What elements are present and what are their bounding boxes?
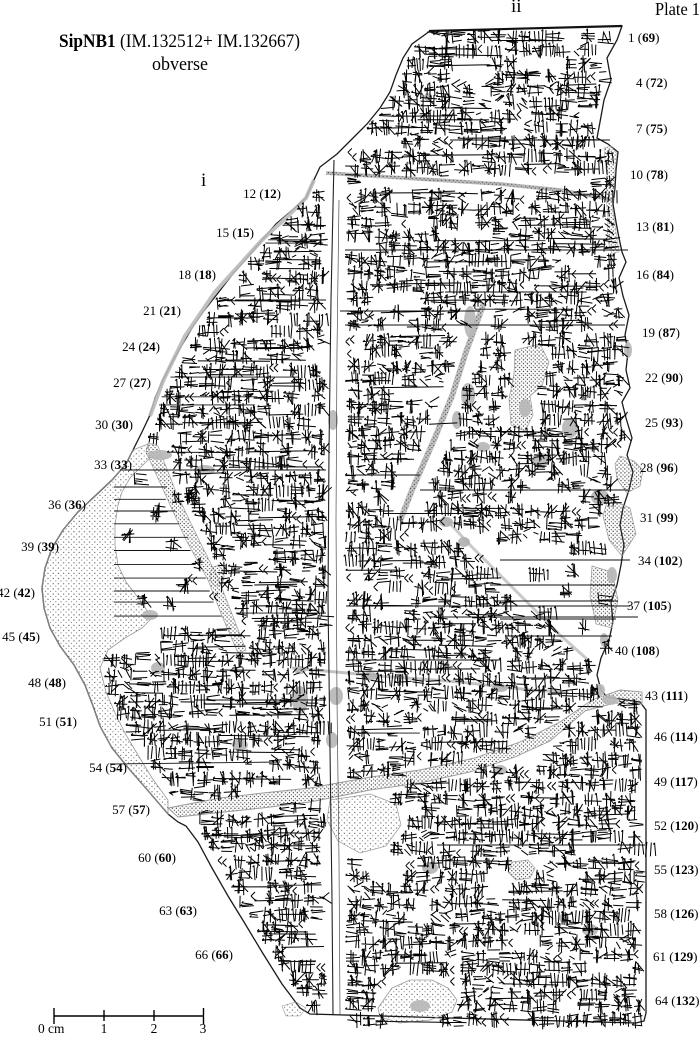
svg-text:10 (78): 10 (78): [630, 167, 668, 182]
svg-text:43 (111): 43 (111): [645, 688, 688, 703]
svg-text:45 (45): 45 (45): [2, 629, 40, 644]
svg-text:36 (36): 36 (36): [48, 497, 86, 512]
svg-text:3: 3: [200, 1021, 207, 1036]
svg-text:obverse: obverse: [152, 54, 208, 75]
svg-text:39 (39): 39 (39): [21, 539, 59, 554]
svg-text:37 (105): 37 (105): [627, 598, 671, 613]
svg-text:18 (18): 18 (18): [178, 267, 216, 282]
svg-text:66 (66): 66 (66): [195, 947, 233, 962]
svg-text:27 (27): 27 (27): [113, 375, 151, 390]
svg-text:25 (93): 25 (93): [645, 415, 683, 430]
svg-text:4 (72): 4 (72): [636, 75, 667, 90]
svg-text:57 (57): 57 (57): [112, 802, 150, 817]
svg-text:13 (81): 13 (81): [636, 219, 674, 234]
svg-text:SipNB1 (IM.132512+ IM.132667): SipNB1 (IM.132512+ IM.132667): [59, 31, 300, 52]
svg-text:28 (96): 28 (96): [640, 460, 678, 475]
svg-text:0 cm: 0 cm: [38, 1021, 65, 1036]
svg-text:16 (84): 16 (84): [636, 267, 674, 282]
svg-text:19 (87): 19 (87): [642, 325, 680, 340]
svg-text:7 (75): 7 (75): [636, 121, 667, 136]
svg-text:58 (126): 58 (126): [654, 906, 698, 921]
svg-text:15 (15): 15 (15): [216, 225, 254, 240]
svg-text:Plate 1: Plate 1: [655, 0, 700, 19]
svg-text:52 (120): 52 (120): [654, 818, 698, 833]
svg-text:24 (24): 24 (24): [122, 339, 160, 354]
svg-text:60 (60): 60 (60): [138, 850, 176, 865]
svg-text:21 (21): 21 (21): [143, 303, 181, 318]
svg-text:54 (54): 54 (54): [89, 760, 127, 775]
svg-text:49 (117): 49 (117): [654, 774, 698, 789]
svg-text:55 (123): 55 (123): [654, 862, 698, 877]
svg-text:42 (42): 42 (42): [0, 585, 35, 600]
svg-text:ii: ii: [511, 0, 522, 17]
svg-text:48 (48): 48 (48): [28, 675, 66, 690]
svg-text:30 (30): 30 (30): [95, 417, 133, 432]
svg-text:40 (108): 40 (108): [615, 643, 659, 658]
svg-text:12 (12): 12 (12): [243, 186, 281, 201]
svg-text:61 (129): 61 (129): [653, 949, 697, 964]
svg-text:46 (114): 46 (114): [654, 729, 698, 744]
svg-text:22 (90): 22 (90): [645, 370, 683, 385]
svg-text:1 (69): 1 (69): [628, 30, 659, 45]
svg-text:2: 2: [151, 1021, 158, 1036]
svg-text:i: i: [201, 170, 206, 191]
svg-text:1: 1: [101, 1021, 108, 1036]
svg-text:31 (99): 31 (99): [640, 510, 678, 525]
svg-text:63 (63): 63 (63): [159, 903, 197, 918]
svg-text:34 (102): 34 (102): [638, 553, 682, 568]
svg-text:64 (132): 64 (132): [655, 993, 699, 1008]
svg-text:33 (33): 33 (33): [94, 457, 132, 472]
svg-text:51 (51): 51 (51): [39, 714, 77, 729]
